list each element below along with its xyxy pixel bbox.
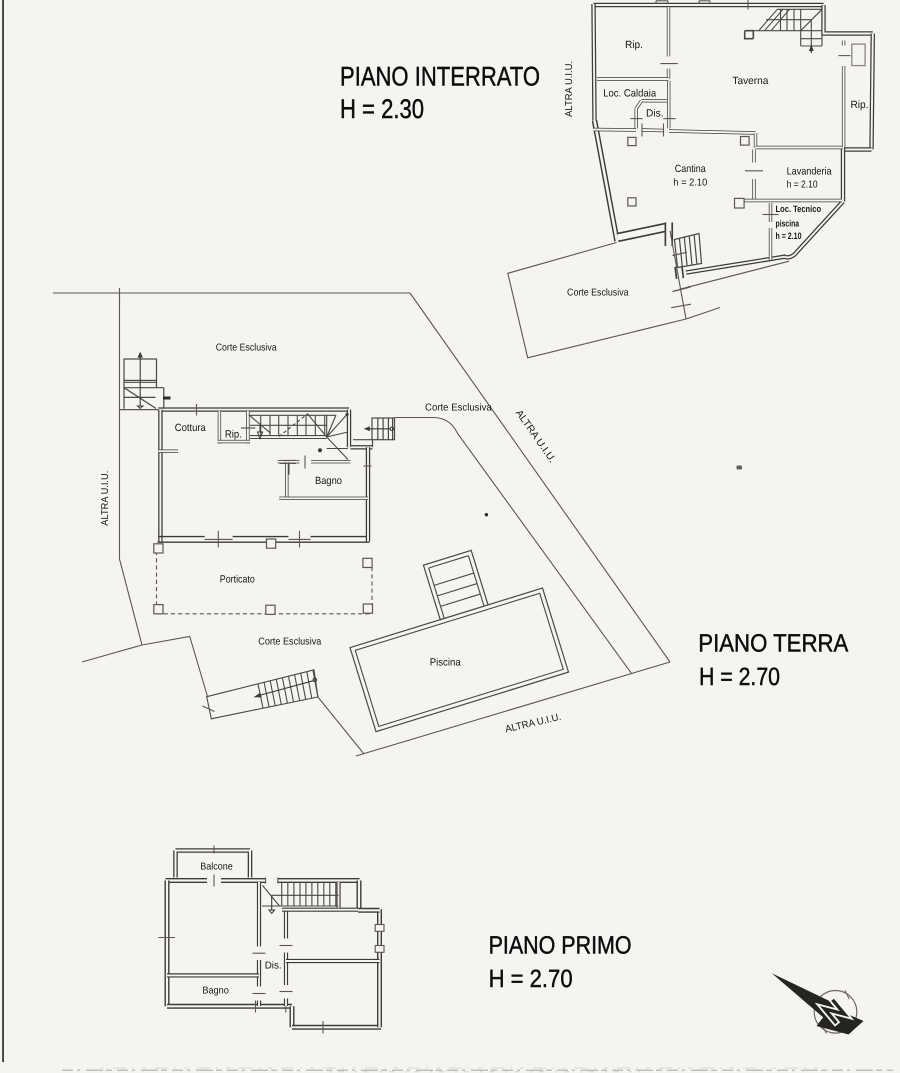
svg-text:H = 2.70: H = 2.70 bbox=[489, 965, 573, 993]
svg-text:H = 2.30: H = 2.30 bbox=[340, 94, 424, 124]
svg-text:Corte Esclusiva: Corte Esclusiva bbox=[567, 288, 629, 299]
svg-text:h = 2.10: h = 2.10 bbox=[787, 179, 818, 190]
svg-text:Bagno: Bagno bbox=[315, 475, 342, 487]
svg-text:Taverna: Taverna bbox=[732, 75, 768, 87]
svg-text:Dis.: Dis. bbox=[265, 960, 282, 971]
svg-text:PIANO INTERRATO: PIANO INTERRATO bbox=[340, 62, 540, 92]
svg-text:Rip.: Rip. bbox=[225, 428, 242, 440]
svg-text:Bagno: Bagno bbox=[202, 986, 229, 997]
svg-text:h = 2.10: h = 2.10 bbox=[776, 231, 802, 241]
svg-text:Lavanderia: Lavanderia bbox=[787, 165, 832, 177]
svg-text:H = 2.70: H = 2.70 bbox=[699, 663, 780, 691]
svg-text:h = 2.10: h = 2.10 bbox=[673, 178, 707, 189]
svg-text:PIANO PRIMO: PIANO PRIMO bbox=[489, 932, 632, 960]
svg-text:Balcone: Balcone bbox=[200, 861, 233, 872]
svg-text:ALTRA U.I.U.: ALTRA U.I.U. bbox=[564, 61, 575, 117]
svg-text:ALTRA U.I.U.: ALTRA U.I.U. bbox=[100, 471, 111, 526]
svg-text:Cottura: Cottura bbox=[175, 422, 206, 434]
svg-text:Cantina: Cantina bbox=[675, 163, 706, 175]
svg-text:Piscina: Piscina bbox=[430, 657, 461, 669]
svg-text:Corte Esclusiva: Corte Esclusiva bbox=[425, 402, 492, 413]
svg-text:Rip.: Rip. bbox=[851, 99, 869, 111]
svg-text:Dis.: Dis. bbox=[646, 108, 664, 120]
svg-text:Corte Esclusiva: Corte Esclusiva bbox=[258, 637, 321, 648]
svg-text:Rip.: Rip. bbox=[625, 39, 643, 51]
svg-text:Corte Esclusiva: Corte Esclusiva bbox=[216, 343, 277, 354]
svg-text:PIANO TERRA: PIANO TERRA bbox=[698, 630, 848, 658]
svg-text:piscina: piscina bbox=[776, 219, 800, 229]
svg-text:Porticato: Porticato bbox=[220, 574, 255, 586]
svg-text:Loc. Caldaia: Loc. Caldaia bbox=[603, 87, 656, 99]
svg-text:Loc. Tecnico: Loc. Tecnico bbox=[776, 204, 822, 214]
